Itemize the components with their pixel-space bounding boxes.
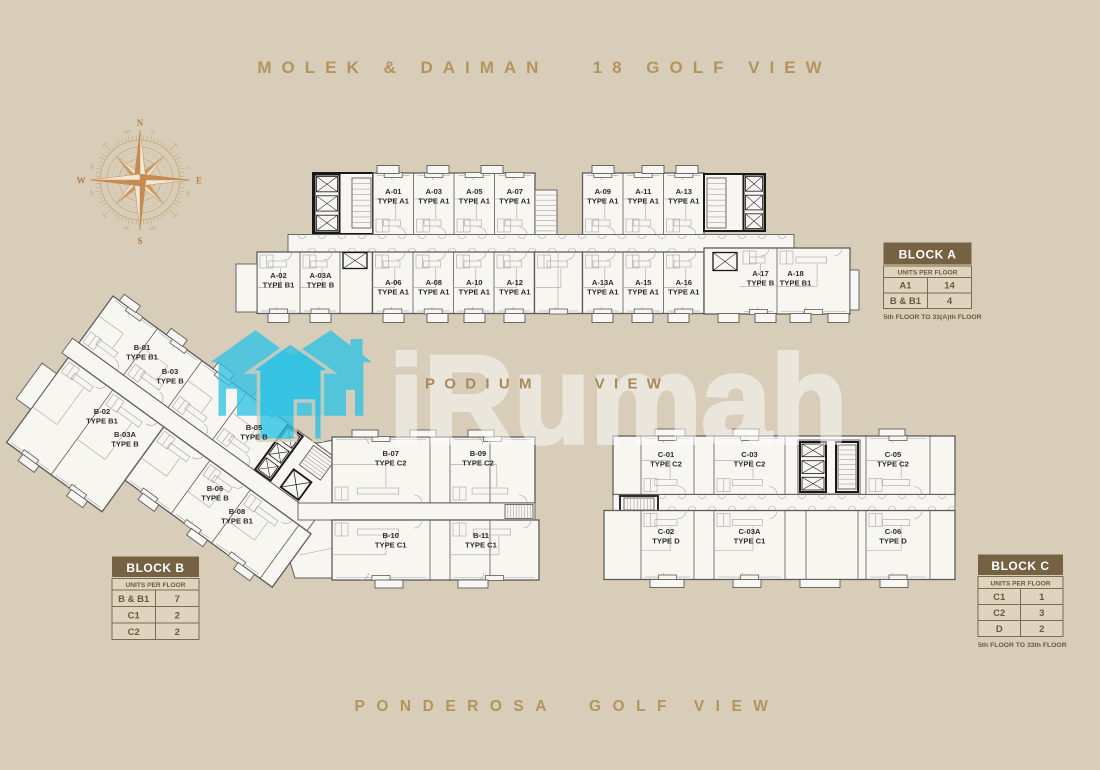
svg-text:E: E — [196, 176, 202, 186]
svg-text:TYPE A1: TYPE A1 — [668, 288, 700, 297]
svg-text:A-03A: A-03A — [310, 271, 332, 280]
svg-text:MOLEK & DAIMAN 18 GOLF VIEW: MOLEK & DAIMAN 18 GOLF VIEW — [257, 58, 831, 77]
svg-text:A1: A1 — [899, 281, 912, 292]
svg-text:B & B1: B & B1 — [890, 296, 922, 307]
svg-text:TYPE C1: TYPE C1 — [465, 541, 497, 550]
svg-text:5th FLOOR TO 33th FLOOR: 5th FLOOR TO 33th FLOOR — [978, 642, 1067, 649]
svg-text:iRumah: iRumah — [389, 331, 847, 470]
svg-text:TYPE B: TYPE B — [111, 440, 139, 449]
svg-text:TYPE A1: TYPE A1 — [499, 197, 531, 206]
svg-text:TYPE B: TYPE B — [201, 494, 229, 503]
svg-text:UNITS PER FLOOR: UNITS PER FLOOR — [125, 582, 185, 589]
svg-text:TYPE B1: TYPE B1 — [263, 281, 295, 290]
svg-text:W: W — [77, 176, 86, 186]
svg-text:14: 14 — [944, 281, 955, 292]
svg-text:2: 2 — [175, 611, 180, 622]
svg-text:TYPE A1: TYPE A1 — [378, 197, 410, 206]
svg-text:3: 3 — [1039, 608, 1044, 619]
svg-text:A-15: A-15 — [635, 278, 652, 287]
svg-text:C-02: C-02 — [658, 527, 674, 536]
svg-text:A-08: A-08 — [426, 278, 442, 287]
svg-text:TYPE A1: TYPE A1 — [587, 288, 619, 297]
svg-text:TYPE A1: TYPE A1 — [418, 197, 450, 206]
svg-text:TYPE C1: TYPE C1 — [375, 541, 407, 550]
svg-text:C1: C1 — [128, 611, 141, 622]
svg-text:B-03: B-03 — [162, 367, 178, 376]
svg-text:S: S — [137, 236, 142, 246]
svg-text:2: 2 — [175, 627, 180, 638]
svg-text:B-08: B-08 — [229, 507, 245, 516]
svg-text:TYPE A1: TYPE A1 — [378, 288, 410, 297]
svg-text:C-03A: C-03A — [739, 527, 761, 536]
svg-text:TYPE B1: TYPE B1 — [126, 353, 158, 362]
svg-text:BLOCK A: BLOCK A — [899, 248, 957, 262]
svg-text:B-03A: B-03A — [114, 430, 136, 439]
svg-text:B-05: B-05 — [246, 423, 263, 432]
svg-text:TYPE A1: TYPE A1 — [418, 288, 450, 297]
svg-text:A-06: A-06 — [385, 278, 401, 287]
svg-text:B-06: B-06 — [207, 484, 223, 493]
svg-text:A-13A: A-13A — [592, 278, 614, 287]
svg-text:A-11: A-11 — [635, 187, 652, 196]
svg-text:A-05: A-05 — [466, 187, 483, 196]
svg-text:B & B1: B & B1 — [118, 594, 150, 605]
svg-text:TYPE A1: TYPE A1 — [628, 197, 660, 206]
svg-text:TYPE D: TYPE D — [652, 537, 680, 546]
svg-text:7: 7 — [175, 594, 180, 605]
svg-text:N: N — [137, 118, 144, 128]
svg-text:A-17: A-17 — [752, 269, 768, 278]
svg-text:C-06: C-06 — [885, 527, 901, 536]
svg-text:PONDEROSA GOLF VIEW: PONDEROSA GOLF VIEW — [355, 698, 780, 715]
svg-text:TYPE B: TYPE B — [307, 281, 335, 290]
svg-text:A-02: A-02 — [270, 271, 286, 280]
svg-text:B-11: B-11 — [473, 531, 490, 540]
svg-text:TYPE B1: TYPE B1 — [780, 279, 812, 288]
svg-text:TYPE A1: TYPE A1 — [459, 197, 491, 206]
svg-text:UNITS PER FLOOR: UNITS PER FLOOR — [990, 581, 1050, 588]
svg-text:TYPE D: TYPE D — [879, 537, 907, 546]
svg-text:C-05: C-05 — [885, 450, 902, 459]
svg-text:A-03: A-03 — [426, 187, 442, 196]
svg-text:A-16: A-16 — [676, 278, 692, 287]
svg-text:TYPE A1: TYPE A1 — [628, 288, 660, 297]
svg-text:TYPE B1: TYPE B1 — [86, 417, 118, 426]
svg-text:TYPE A1: TYPE A1 — [499, 288, 531, 297]
svg-text:A-13: A-13 — [676, 187, 692, 196]
svg-text:BLOCK C: BLOCK C — [991, 559, 1049, 573]
svg-text:A-18: A-18 — [787, 269, 803, 278]
svg-text:TYPE A1: TYPE A1 — [668, 197, 700, 206]
svg-text:TYPE A1: TYPE A1 — [459, 288, 491, 297]
svg-text:C1: C1 — [993, 592, 1006, 603]
svg-text:A-12: A-12 — [507, 278, 523, 287]
svg-text:A-01: A-01 — [385, 187, 402, 196]
svg-text:2: 2 — [1039, 624, 1044, 635]
svg-text:A-09: A-09 — [595, 187, 611, 196]
svg-text:D: D — [996, 624, 1003, 635]
svg-text:TYPE B: TYPE B — [240, 433, 268, 442]
svg-text:PODIUM VIEW: PODIUM VIEW — [425, 376, 670, 393]
svg-text:TYPE A1: TYPE A1 — [587, 197, 619, 206]
svg-text:TYPE C2: TYPE C2 — [877, 460, 909, 469]
svg-text:C2: C2 — [993, 608, 1005, 619]
svg-text:5th FLOOR TO 33(A)th FLOOR: 5th FLOOR TO 33(A)th FLOOR — [884, 314, 982, 321]
svg-text:TYPE B: TYPE B — [156, 377, 184, 386]
svg-text:4: 4 — [947, 296, 953, 307]
svg-text:TYPE B: TYPE B — [747, 279, 775, 288]
svg-text:TYPE B1: TYPE B1 — [221, 517, 253, 526]
svg-text:B-02: B-02 — [94, 407, 110, 416]
svg-text:UNITS PER FLOOR: UNITS PER FLOOR — [897, 270, 957, 277]
svg-text:B-01: B-01 — [134, 343, 151, 352]
svg-text:1: 1 — [1039, 592, 1045, 603]
svg-text:BLOCK B: BLOCK B — [126, 561, 184, 575]
svg-text:B-10: B-10 — [382, 531, 398, 540]
svg-text:A-07: A-07 — [507, 187, 523, 196]
svg-text:A-10: A-10 — [466, 278, 482, 287]
svg-text:TYPE C1: TYPE C1 — [734, 537, 766, 546]
svg-text:C2: C2 — [128, 627, 140, 638]
